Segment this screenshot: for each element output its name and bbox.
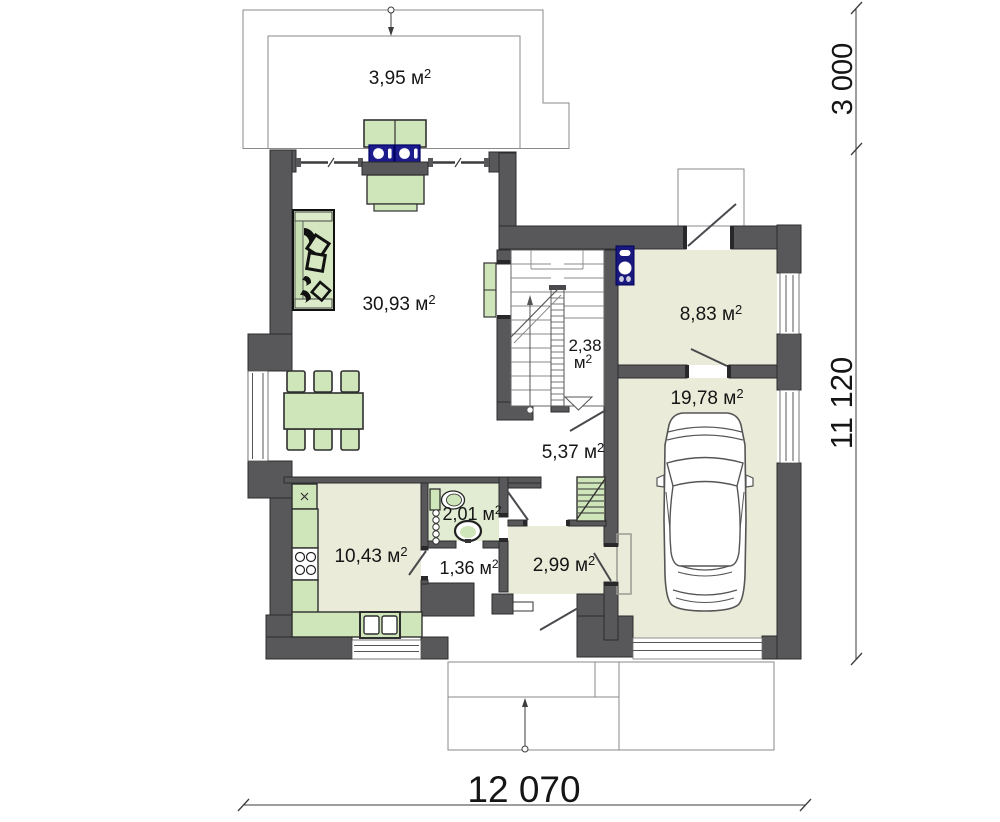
svg-text:12 070: 12 070 [467, 769, 580, 810]
svg-text:1,36 м2: 1,36 м2 [439, 557, 498, 578]
svg-text:2,99 м2: 2,99 м2 [533, 553, 596, 576]
svg-text:10,43 м2: 10,43 м2 [334, 544, 407, 567]
svg-text:3 000: 3 000 [827, 43, 859, 116]
svg-text:11 120: 11 120 [824, 357, 859, 450]
svg-text:2,01 м2: 2,01 м2 [442, 503, 501, 524]
svg-text:30,93 м2: 30,93 м2 [362, 292, 435, 315]
svg-text:3,95 м2: 3,95 м2 [369, 66, 432, 89]
svg-text:5,37 м2: 5,37 м2 [542, 440, 605, 463]
svg-text:19,78 м2: 19,78 м2 [670, 386, 743, 409]
svg-text:8,83 м2: 8,83 м2 [680, 302, 743, 325]
